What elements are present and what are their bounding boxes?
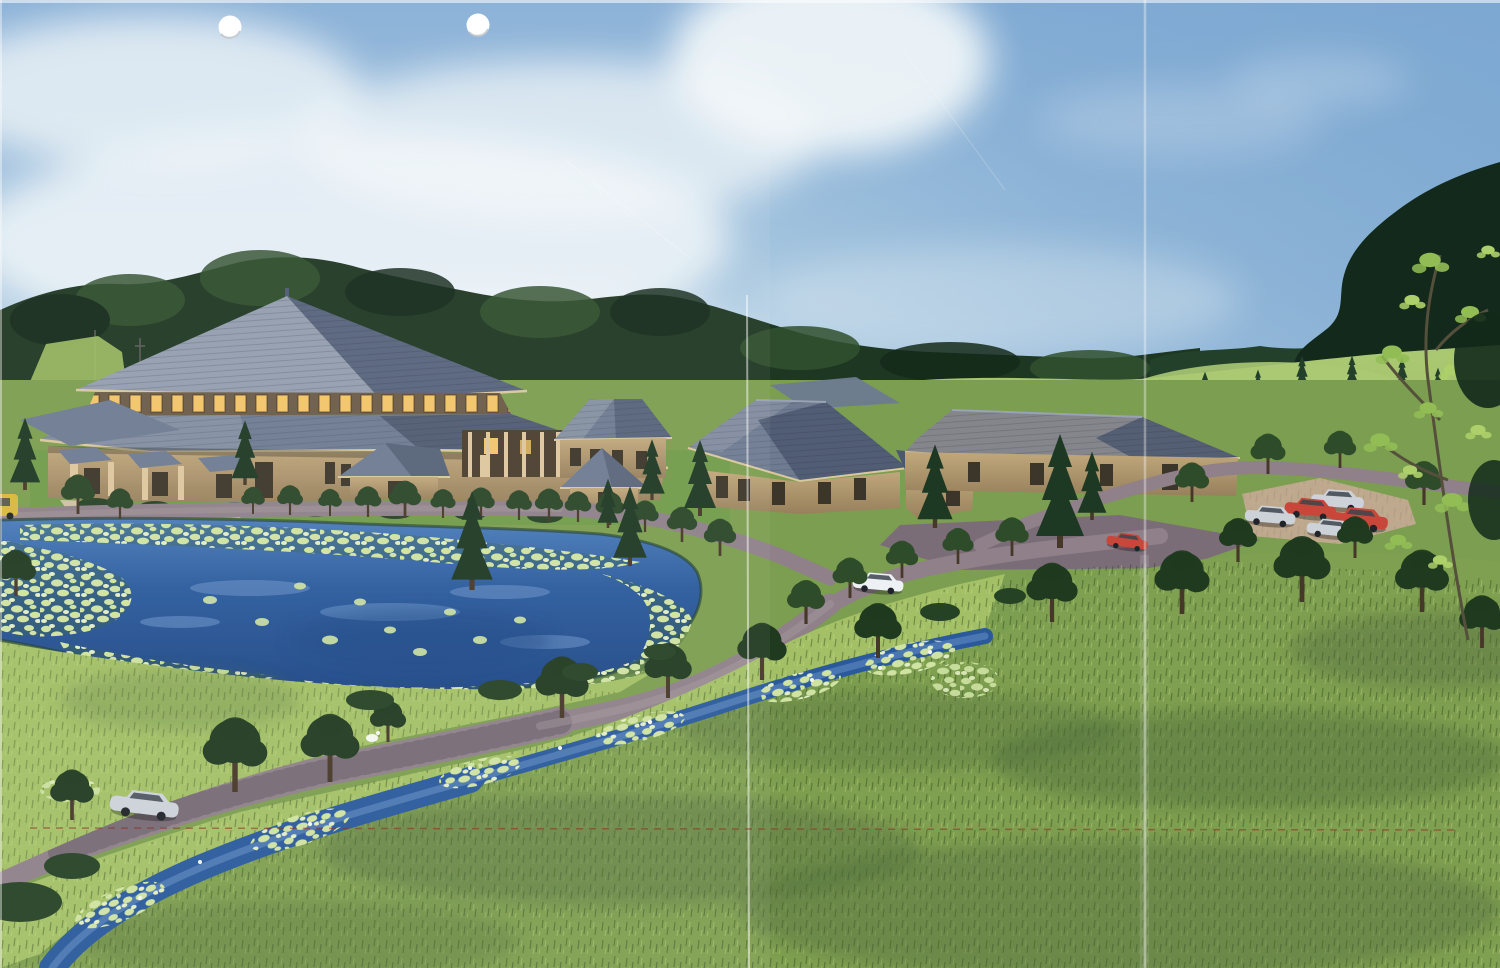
paper-left-edge — [0, 0, 2, 968]
hole-punch-right — [467, 14, 490, 37]
rendering-image — [0, 0, 1500, 968]
paper-top-edge — [0, 0, 1500, 3]
scanned-rendering-page — [0, 0, 1500, 968]
left-half-scan-haze — [0, 0, 770, 968]
hole-punch-left — [219, 16, 242, 39]
